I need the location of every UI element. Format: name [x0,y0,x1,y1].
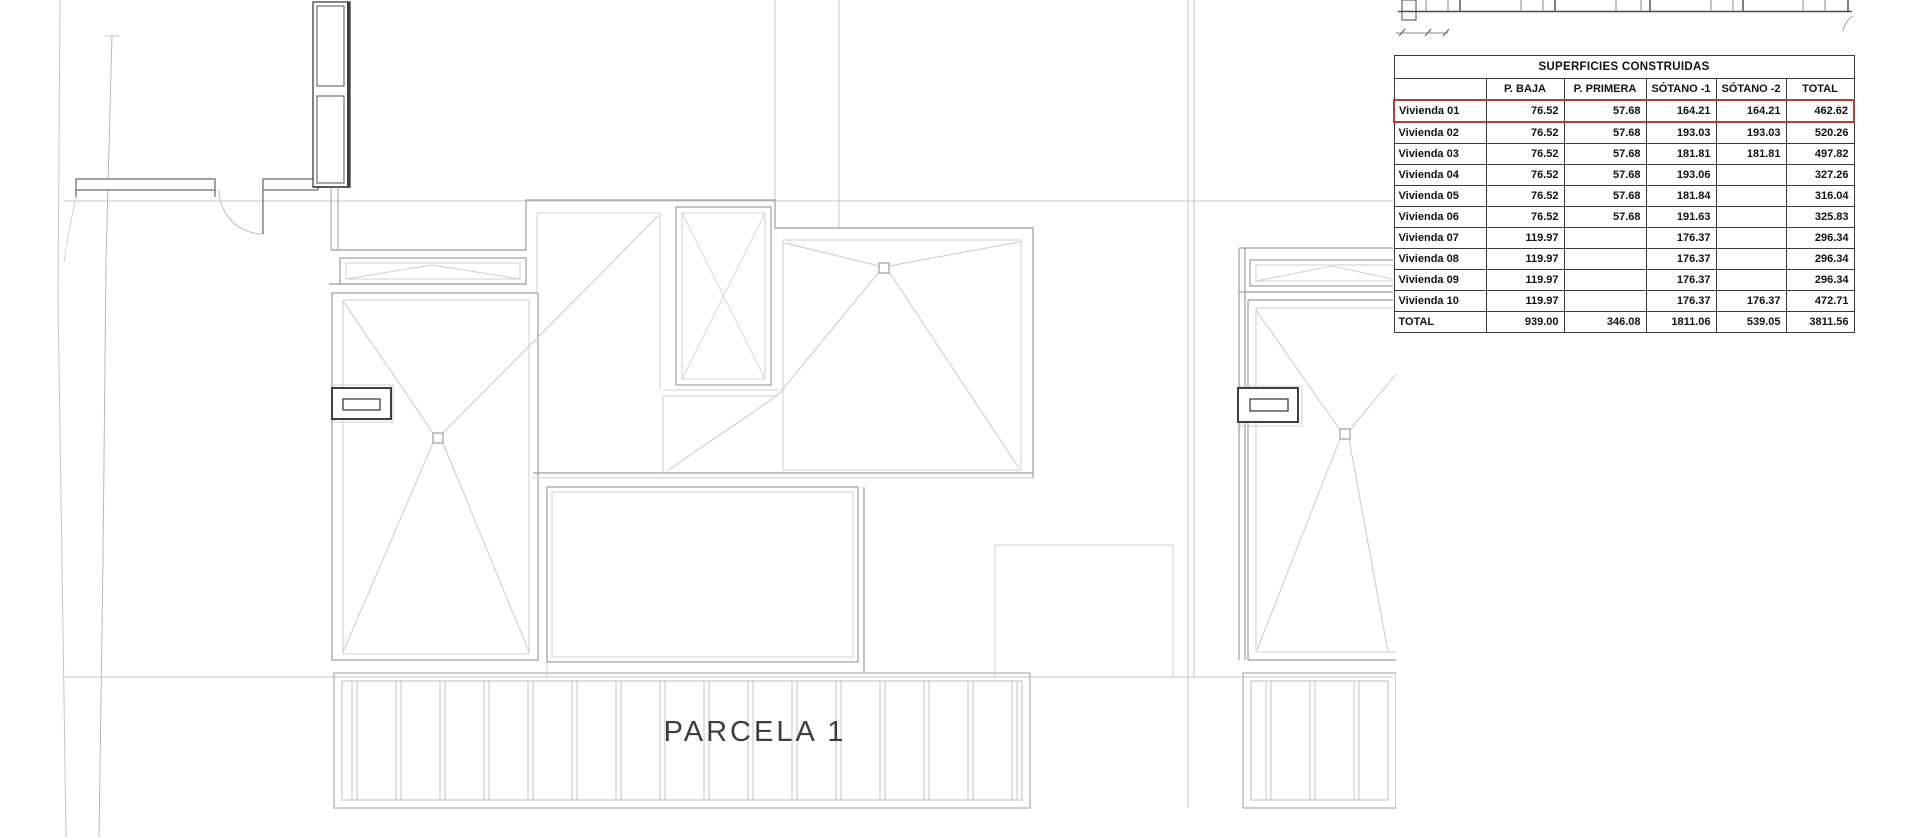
pergola-right [1243,673,1396,808]
curb-curve [64,197,76,262]
skylight [676,207,771,385]
table-row: Vivienda 02 76.52 57.68 193.03 193.03 52… [1394,122,1854,144]
wall-column-upper [317,6,344,86]
skylight-x [682,213,765,379]
door-swing-arc [219,190,263,234]
table-total-row: TOTAL 939.00 346.08 1811.06 539.05 3811.… [1394,312,1854,333]
table-row: Vivienda 08 119.97 176.37 296.34 [1394,249,1854,270]
table-row: Vivienda 05 76.52 57.68 181.84 316.04 [1394,186,1854,207]
neighbor-house-roof-plan [1238,248,1396,808]
n-vent-inner [1250,399,1288,411]
table-title-row: SUPERFICIES CONSTRUIDAS [1394,56,1854,79]
wall-segment-b [263,179,318,190]
pergola-main: PARCELA 1 [334,673,1030,808]
col-header-total: TOTAL [1786,79,1854,101]
table-row: Vivienda 07 119.97 176.37 296.34 [1394,228,1854,249]
n-roof-hips [1256,310,1396,652]
parcel-label: PARCELA 1 [664,716,847,748]
table-row: Vivienda 09 119.97 176.37 296.34 [1394,270,1854,291]
entrance-roof-band [340,258,526,284]
col-header-sotano2: SÓTANO -2 [1716,79,1786,101]
terrace-inner [552,492,853,657]
n-roof-outer [1248,300,1396,660]
right-roof-inner [783,240,1021,470]
superficies-table: SUPERFICIES CONSTRUIDAS P. BAJA P. PRIME… [1393,55,1855,333]
mid-roof-inner-edge [537,213,660,390]
wall-column-lower [317,96,344,183]
elevation-strip [1396,0,1853,36]
terrace-outer [547,487,858,662]
col-header-pprimera: P. PRIMERA [1564,79,1646,101]
col-header-pbaja: P. BAJA [1486,79,1564,101]
table-row: Vivienda 06 76.52 57.68 191.63 325.83 [1394,207,1854,228]
wall-end-ticks [76,190,215,197]
col-header-sotano1: SÓTANO -1 [1646,79,1716,101]
roof-drain-right [879,263,889,273]
wall-connector [331,187,338,250]
boundary-line-west-2 [99,36,112,837]
roof-drain-left [433,433,443,443]
elevation-curve-mark [1843,16,1853,31]
right-roof-hips [667,242,1019,471]
wall-segment-a [76,179,215,190]
n-entrance-band [1250,260,1396,286]
elevation-columns [1460,0,1848,11]
main-house-roof-plan [329,200,1173,677]
n-top-outline [1239,248,1396,660]
col-header-name [1394,79,1486,101]
elevation-mullions [1426,0,1825,11]
plot-division-3 [1188,0,1194,808]
table-header-row: P. BAJA P. PRIMERA SÓTANO -1 SÓTANO -2 T… [1394,79,1854,101]
table-row: Vivienda 10 119.97 176.37 176.37 472.71 [1394,291,1854,312]
vent-inner [343,399,380,410]
roof-vent-right [1238,386,1302,426]
entrance-roof-ridge [346,265,520,279]
side-yard-rect [995,545,1173,677]
table-row-highlighted: Vivienda 01 76.52 57.68 164.21 164.21 46… [1394,100,1854,122]
boundary-line-west [58,0,66,837]
n-roof-drain [1340,429,1350,439]
under-skylight-double [663,390,778,473]
table-row: Vivienda 03 76.52 57.68 181.81 181.81 49… [1394,144,1854,165]
n-entrance-ridge [1256,266,1396,281]
plot-boundary-lines [58,0,1393,837]
left-roof-hips [343,216,658,652]
roof-vent-left [332,385,393,422]
drawing-canvas: PARCELA 1 [0,0,1920,837]
table-row: Vivienda 04 76.52 57.68 193.06 327.26 [1394,165,1854,186]
n-pergola-slats [1266,681,1359,800]
table-title: SUPERFICIES CONSTRUIDAS [1394,56,1854,79]
elevation-detail-box [1402,0,1416,20]
left-roof-inner [343,300,529,654]
n-pergola-inner [1251,681,1388,800]
interior-walls [76,2,350,250]
